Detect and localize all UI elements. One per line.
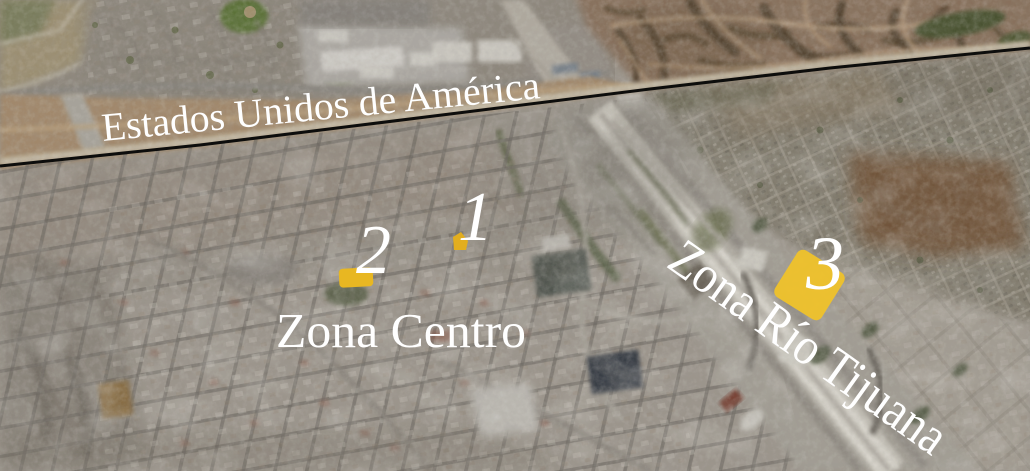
svg-text:2: 2: [356, 212, 391, 289]
svg-text:1: 1: [458, 179, 493, 256]
svg-text:Zona Centro: Zona Centro: [276, 303, 526, 358]
svg-text:3: 3: [805, 222, 844, 306]
